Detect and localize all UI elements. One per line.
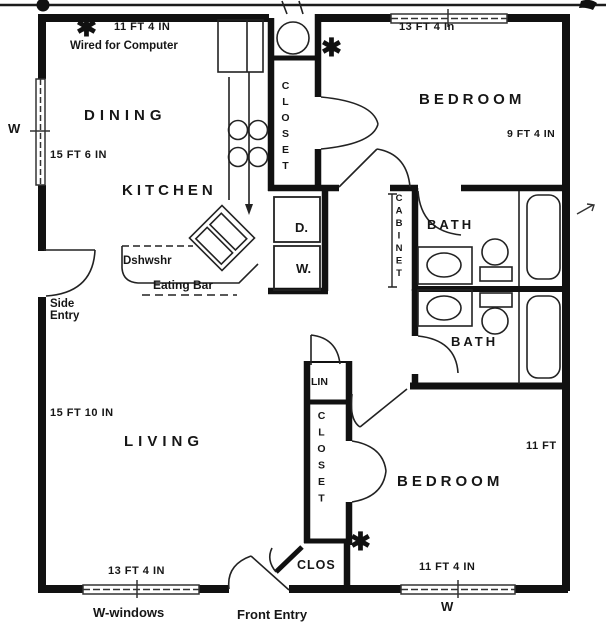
burner xyxy=(249,148,268,167)
floor-plan-page: ✱ 11 FT 4 IN Wired for Computer 13 FT 4 … xyxy=(0,0,606,638)
room-label-closet-bottom: CLOSET xyxy=(316,410,327,509)
room-label-bath-top: BATH xyxy=(427,218,474,232)
room-label-bedroom-top: BEDROOM xyxy=(419,92,525,108)
eating-bar-label: Eating Bar xyxy=(153,279,213,292)
dim-bedroom-top-depth: 9 FT 4 IN xyxy=(507,129,555,140)
entry-closet-label: CLOS xyxy=(297,559,336,573)
dim-dining-width: 11 FT 4 IN xyxy=(114,22,170,34)
doors xyxy=(44,97,461,590)
dim-bedroom-bottom-width: 11 FT 4 IN xyxy=(419,562,475,574)
cabinet-label: CABINET xyxy=(394,193,404,281)
burner xyxy=(229,148,248,167)
dim-living-depth: 15 FT 10 IN xyxy=(50,408,114,420)
refrigerator xyxy=(218,20,263,72)
room-label-bedroom-bottom: BEDROOM xyxy=(397,474,503,490)
burner xyxy=(249,121,268,140)
dim-living-width: 13 FT 4 IN xyxy=(108,566,165,578)
wired-for-computer-note: Wired for Computer xyxy=(70,40,178,52)
asterisk-mark: ✱ xyxy=(321,36,342,61)
window-label-left: W xyxy=(8,122,20,136)
toilet-tank xyxy=(480,293,512,307)
dim-bedroom-bottom-depth: 11 FT xyxy=(526,441,557,453)
water-heater xyxy=(277,1,309,54)
laundry-appliances xyxy=(274,197,320,290)
stray-mark xyxy=(577,204,594,214)
kitchen-fixtures xyxy=(122,20,268,295)
asterisk-mark: ✱ xyxy=(76,16,97,41)
vanity-sink xyxy=(427,253,461,277)
linen-closet-label: LIN xyxy=(311,377,328,388)
kitchen-sink xyxy=(189,205,254,270)
side-entry-label: Side Entry xyxy=(50,298,90,323)
burner xyxy=(229,121,248,140)
room-label-kitchen: KITCHEN xyxy=(122,183,217,199)
room-label-closet-top: CLOSET xyxy=(280,80,291,176)
toilet-tank xyxy=(480,267,512,281)
toilet-bowl xyxy=(482,308,508,334)
room-label-living: LIVING xyxy=(124,434,204,450)
dishwasher-label: Dshwshr xyxy=(123,255,172,267)
vanity-sink xyxy=(427,296,461,320)
toilet-bowl xyxy=(482,239,508,265)
washer-label: W. xyxy=(296,262,311,276)
windows-legend-label: W-windows xyxy=(93,606,164,620)
room-label-bath-bottom: BATH xyxy=(451,335,498,349)
room-label-dining: DINING xyxy=(84,108,167,124)
front-entry-label: Front Entry xyxy=(237,608,307,622)
dryer-label: D. xyxy=(295,221,308,235)
asterisk-mark: ✱ xyxy=(350,530,371,555)
bathtub xyxy=(527,195,560,279)
bathtub xyxy=(527,296,560,378)
dim-dining-depth: 15 FT 6 IN xyxy=(50,150,107,162)
dim-bedroom-top-width: 13 FT 4 In xyxy=(399,22,455,34)
window-label-bottom: W xyxy=(441,600,453,614)
scan-artifacts xyxy=(0,0,606,12)
